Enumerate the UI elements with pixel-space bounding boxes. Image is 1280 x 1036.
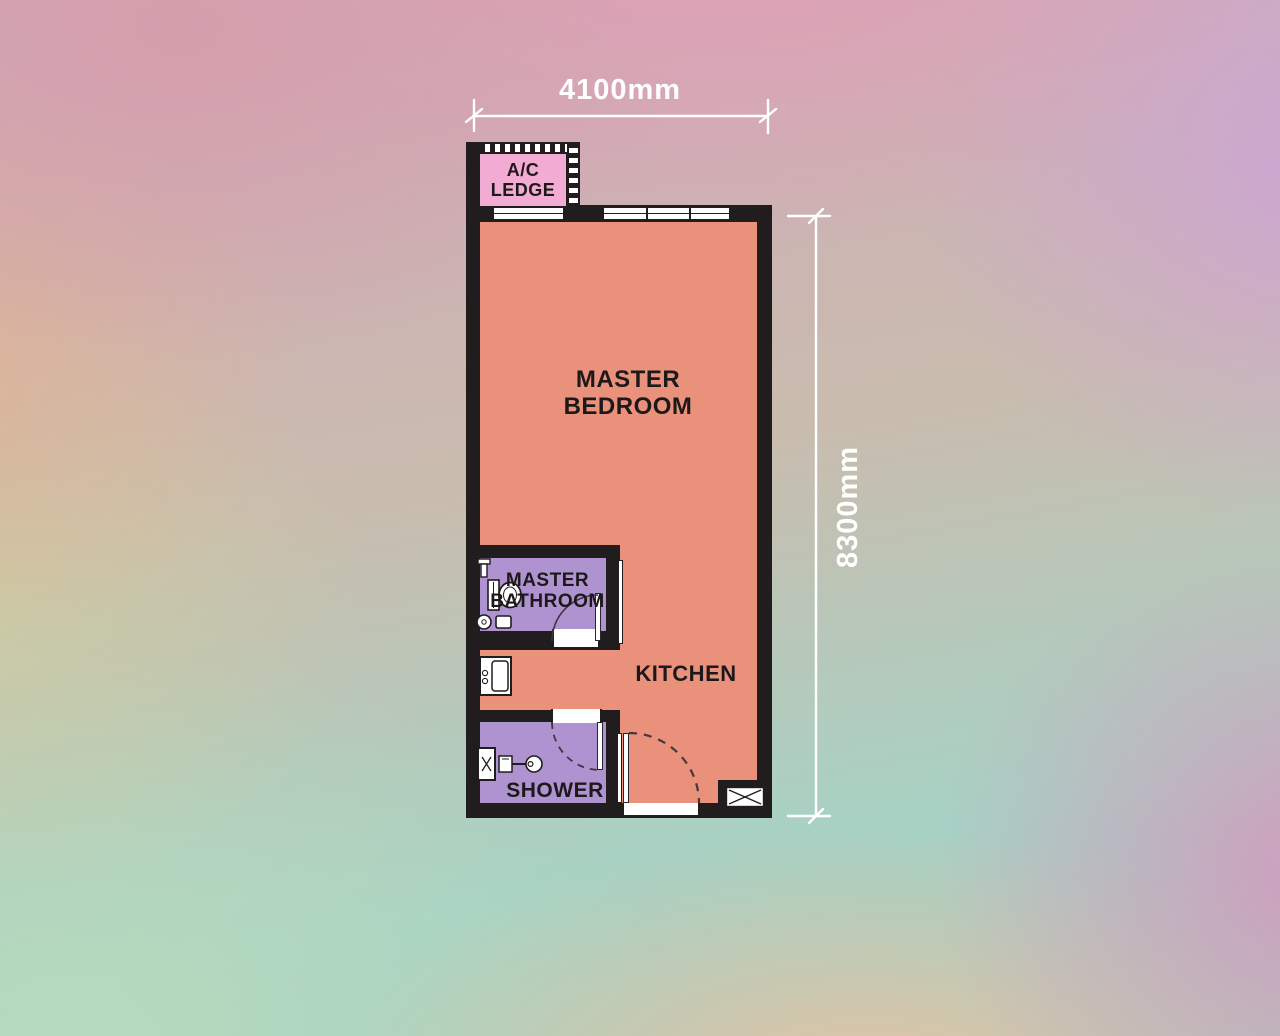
window-mullion	[646, 208, 648, 219]
kitchen-label: KITCHEN	[586, 660, 786, 688]
pastel-gradient-background: 4100mm 8300mm A/C LEDGE MASTER BEDROOM M…	[0, 0, 1280, 1036]
bedroom-window-left	[492, 206, 565, 221]
ac-ledge-louvre-right	[567, 142, 580, 210]
width-dimension-label: 4100mm	[520, 72, 720, 108]
master-bedroom-label: MASTER BEDROOM	[543, 366, 713, 422]
height-dimension-line	[788, 209, 830, 823]
entrance-niche-wall	[718, 780, 772, 818]
window-mullion	[689, 208, 691, 219]
ac-ledge-label: A/C LEDGE	[480, 153, 566, 207]
floor-plan: 4100mm 8300mm A/C LEDGE MASTER BEDROOM M…	[0, 0, 1280, 1036]
height-dimension-label: 8300mm	[830, 407, 866, 607]
bedroom-window-right	[602, 206, 731, 221]
shower-door-opening	[551, 709, 602, 723]
window-glazing-line	[604, 213, 729, 215]
bathroom-door-opening	[552, 629, 600, 647]
shower-door-leaf	[597, 722, 603, 770]
entrance-door-opening	[622, 803, 700, 818]
shower-label: SHOWER	[475, 778, 635, 804]
master-bathroom-label: MASTER BATHROOM	[470, 567, 625, 615]
window-glazing-line	[494, 213, 563, 215]
